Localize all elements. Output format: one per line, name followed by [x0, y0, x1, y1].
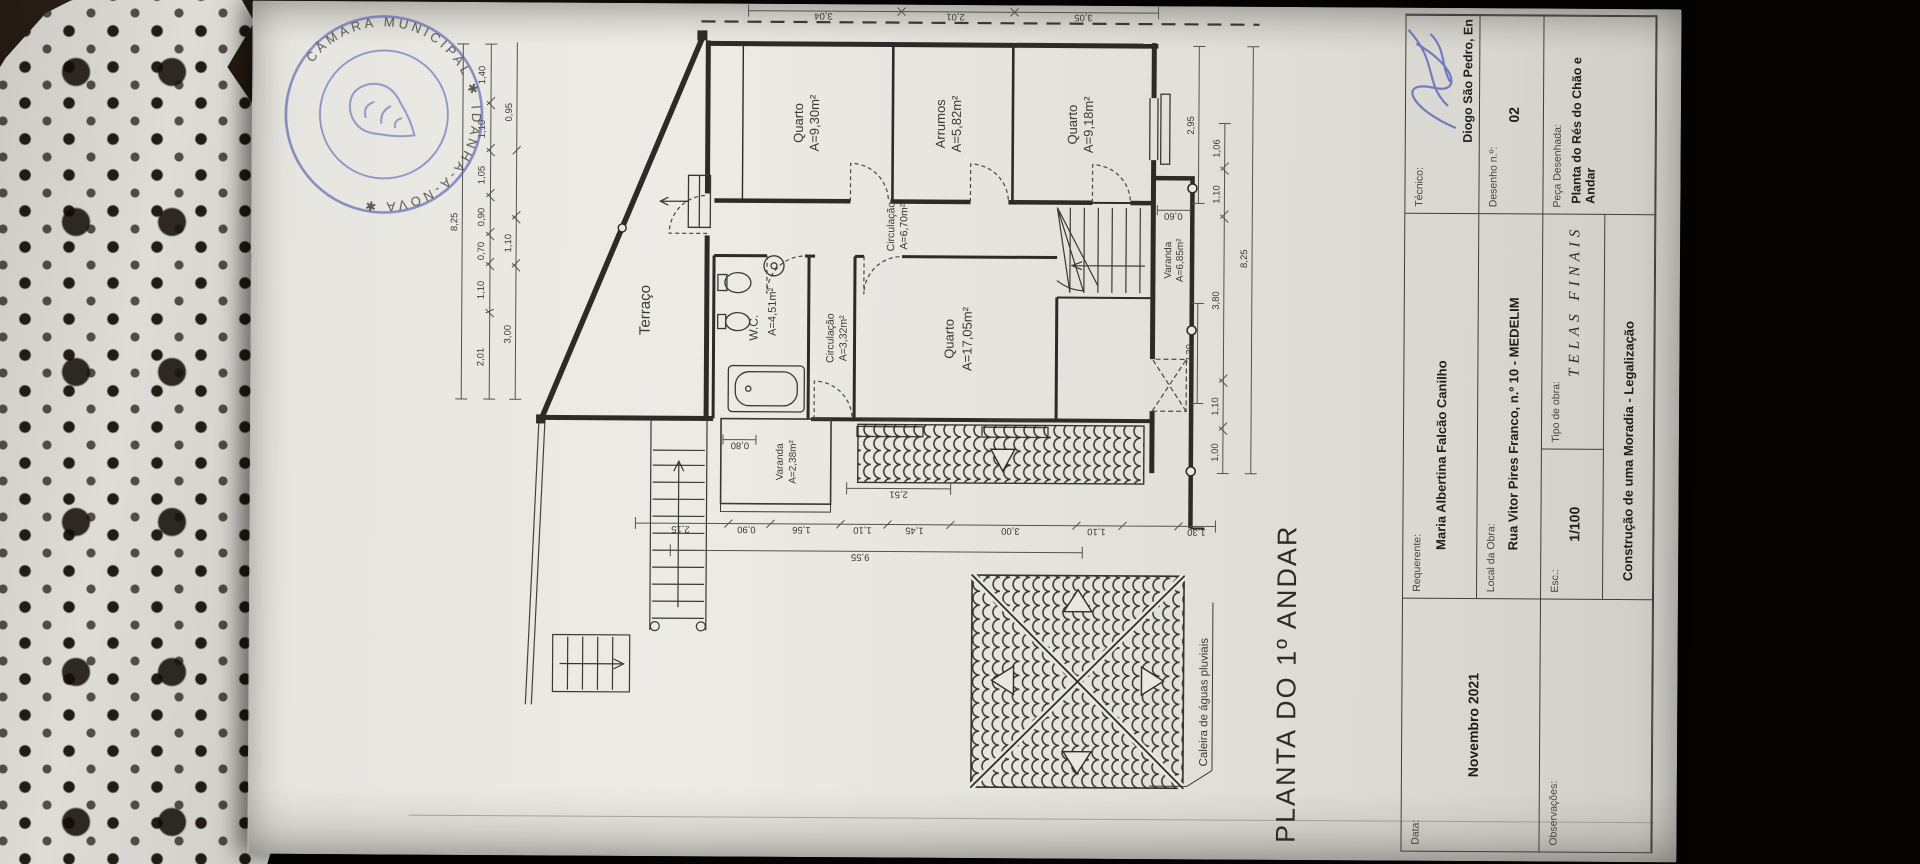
svg-text:A=5,82m²: A=5,82m² [949, 95, 964, 152]
roof-eave-dashed-line [702, 21, 1260, 24]
interior-stair [1057, 208, 1146, 294]
svg-text:1,10: 1,10 [853, 524, 872, 535]
quarto3-label: Quarto [941, 319, 956, 359]
circulacao1-label: Circulação [885, 202, 897, 252]
photo-of-floor-plan: Caleira de águas pluviais Quarto A=9,30m… [0, 0, 1920, 864]
quarto2-label: Quarto [1065, 105, 1080, 145]
svg-text:1,10: 1,10 [1210, 397, 1221, 416]
lower-stair [552, 634, 629, 691]
svg-text:3,00: 3,00 [1001, 525, 1020, 536]
svg-text:1,30: 1,30 [1187, 526, 1206, 537]
terrace-boundary [525, 29, 707, 705]
lower-roof [971, 575, 1184, 788]
svg-text:1,10: 1,10 [1087, 526, 1106, 537]
svg-text:1,10: 1,10 [503, 234, 514, 253]
observacoes-label: Observações: [1547, 781, 1559, 846]
svg-text:1,10: 1,10 [1211, 185, 1222, 204]
title-block: Data: Novembro 2021 Observações: Requere… [1400, 14, 1657, 854]
svg-text:A=6,70m²: A=6,70m² [898, 203, 910, 249]
front-varanda [1151, 178, 1206, 528]
svg-text:A=3,32m²: A=3,32m² [837, 315, 849, 361]
svg-text:1,56: 1,56 [792, 524, 811, 535]
titleblock-local-cell: Local da Obra: Rua Vitor Pires Franco, n… [1477, 213, 1543, 598]
side-roof-strip [858, 424, 1144, 484]
construcao-value: Construção de uma Moradia - Legalização [1620, 321, 1637, 593]
local-label: Local da Obra: [1485, 523, 1497, 592]
svg-text:0,90: 0,90 [476, 208, 487, 227]
svg-text:A=6,85m²: A=6,85m² [1175, 238, 1186, 282]
peca-value-line1: Planta do Rés do Chão e [1569, 23, 1584, 204]
svg-text:2,01: 2,01 [946, 11, 965, 22]
svg-text:A=2,38m²: A=2,38m² [788, 439, 799, 483]
esc-label: Esc.: [1549, 569, 1561, 592]
titleblock-requerente-cell: Requerente: Maria Albertina Falcão Canil… [1403, 213, 1479, 598]
local-value: Rua Vitor Pires Franco, n.º 10 - MEDELIM [1499, 220, 1522, 592]
titleblock-data-cell: Data: Novembro 2021 [1401, 598, 1541, 852]
drawing-title: PLANTA DO 1º ANDAR [1270, 443, 1303, 843]
terraco-label: Terraço [637, 285, 654, 335]
desenho-value: 02 [1505, 16, 1522, 213]
svg-text:A=4,51m²: A=4,51m² [767, 287, 779, 335]
peca-label: Peça Desenhada: [1551, 124, 1564, 208]
svg-text:2,01: 2,01 [475, 348, 486, 367]
svg-text:1,06: 1,06 [1212, 139, 1223, 158]
requerente-value: Maria Albertina Falcão Canilho [1425, 220, 1450, 592]
esc-value: 1/100 [1565, 450, 1582, 599]
tipo-label: Tipo de obra: [1550, 381, 1562, 443]
circulacao2-label: Circulação [824, 313, 836, 363]
titleblock-tecnico-cell: Técnico: Diogo São Pedro, En [1405, 15, 1480, 213]
data-label: Data: [1409, 820, 1421, 845]
data-value: Novembro 2021 [1464, 599, 1482, 851]
wc-label: W.C. [747, 315, 761, 341]
svg-text:2,30: 2,30 [1184, 344, 1195, 363]
svg-text:9,55: 9,55 [851, 551, 870, 562]
svg-text:2,15: 2,15 [671, 523, 690, 534]
svg-text:3,04: 3,04 [814, 10, 833, 21]
peca-value-line2: Andar [1583, 23, 1598, 204]
titleblock-peca-cell: Peça Desenhada: Planta do Rés do Chão e … [1543, 16, 1656, 215]
titleblock-construcao-cell: Construção de uma Moradia - Legalização [1603, 214, 1655, 599]
caleira-text: Caleira de águas pluviais [1198, 638, 1211, 767]
svg-text:3,80: 3,80 [1211, 291, 1222, 310]
svg-text:3,00: 3,00 [503, 325, 514, 344]
svg-text:3,05: 3,05 [1074, 12, 1093, 23]
svg-text:A=17,05m²: A=17,05m² [959, 306, 974, 371]
tipo-value: TELAS FINAIS [1566, 225, 1584, 377]
titleblock-esc-cell: Esc.: 1/100 [1541, 449, 1604, 599]
svg-text:2,95: 2,95 [1186, 116, 1197, 135]
svg-text:8,25: 8,25 [1239, 249, 1250, 268]
titleblock-observacoes-cell: Observações: [1539, 599, 1653, 853]
tecnico-value: Diogo São Pedro, En [1461, 19, 1476, 143]
titleblock-tipo-cell: Tipo de obra: TELAS FINAIS [1542, 214, 1605, 449]
svg-text:1,00: 1,00 [1210, 443, 1221, 462]
svg-text:2,51: 2,51 [889, 489, 908, 500]
svg-text:0,60: 0,60 [1164, 210, 1183, 221]
requerente-label: Requerente: [1411, 534, 1423, 592]
arrumos-label: Arrumos [933, 99, 948, 149]
quarto1-label: Quarto [791, 103, 806, 143]
wc-fixtures [717, 255, 805, 412]
svg-text:0,90: 0,90 [737, 524, 756, 535]
paper-sheet: Caleira de águas pluviais Quarto A=9,30m… [247, 1, 1681, 863]
architectural-drawing: Caleira de águas pluviais Quarto A=9,30m… [248, 1, 1680, 862]
svg-text:0,70: 0,70 [476, 242, 487, 261]
svg-text:A=9,18m²: A=9,18m² [1081, 96, 1096, 153]
varanda1-label: Varanda [775, 443, 786, 481]
svg-text:1,45: 1,45 [905, 525, 924, 536]
svg-text:A=9,30m²: A=9,30m² [807, 94, 822, 151]
svg-text:0,80: 0,80 [731, 440, 750, 451]
titleblock-desenho-cell: Desenho n.º: 02 [1479, 15, 1544, 213]
varanda2-label: Varanda [1163, 241, 1174, 279]
svg-text:8,25: 8,25 [449, 213, 460, 232]
stamp-crest-icon [340, 73, 429, 155]
desenho-label: Desenho n.º: [1487, 147, 1499, 208]
svg-text:1,10: 1,10 [476, 281, 487, 300]
tecnico-label: Técnico: [1413, 167, 1425, 207]
